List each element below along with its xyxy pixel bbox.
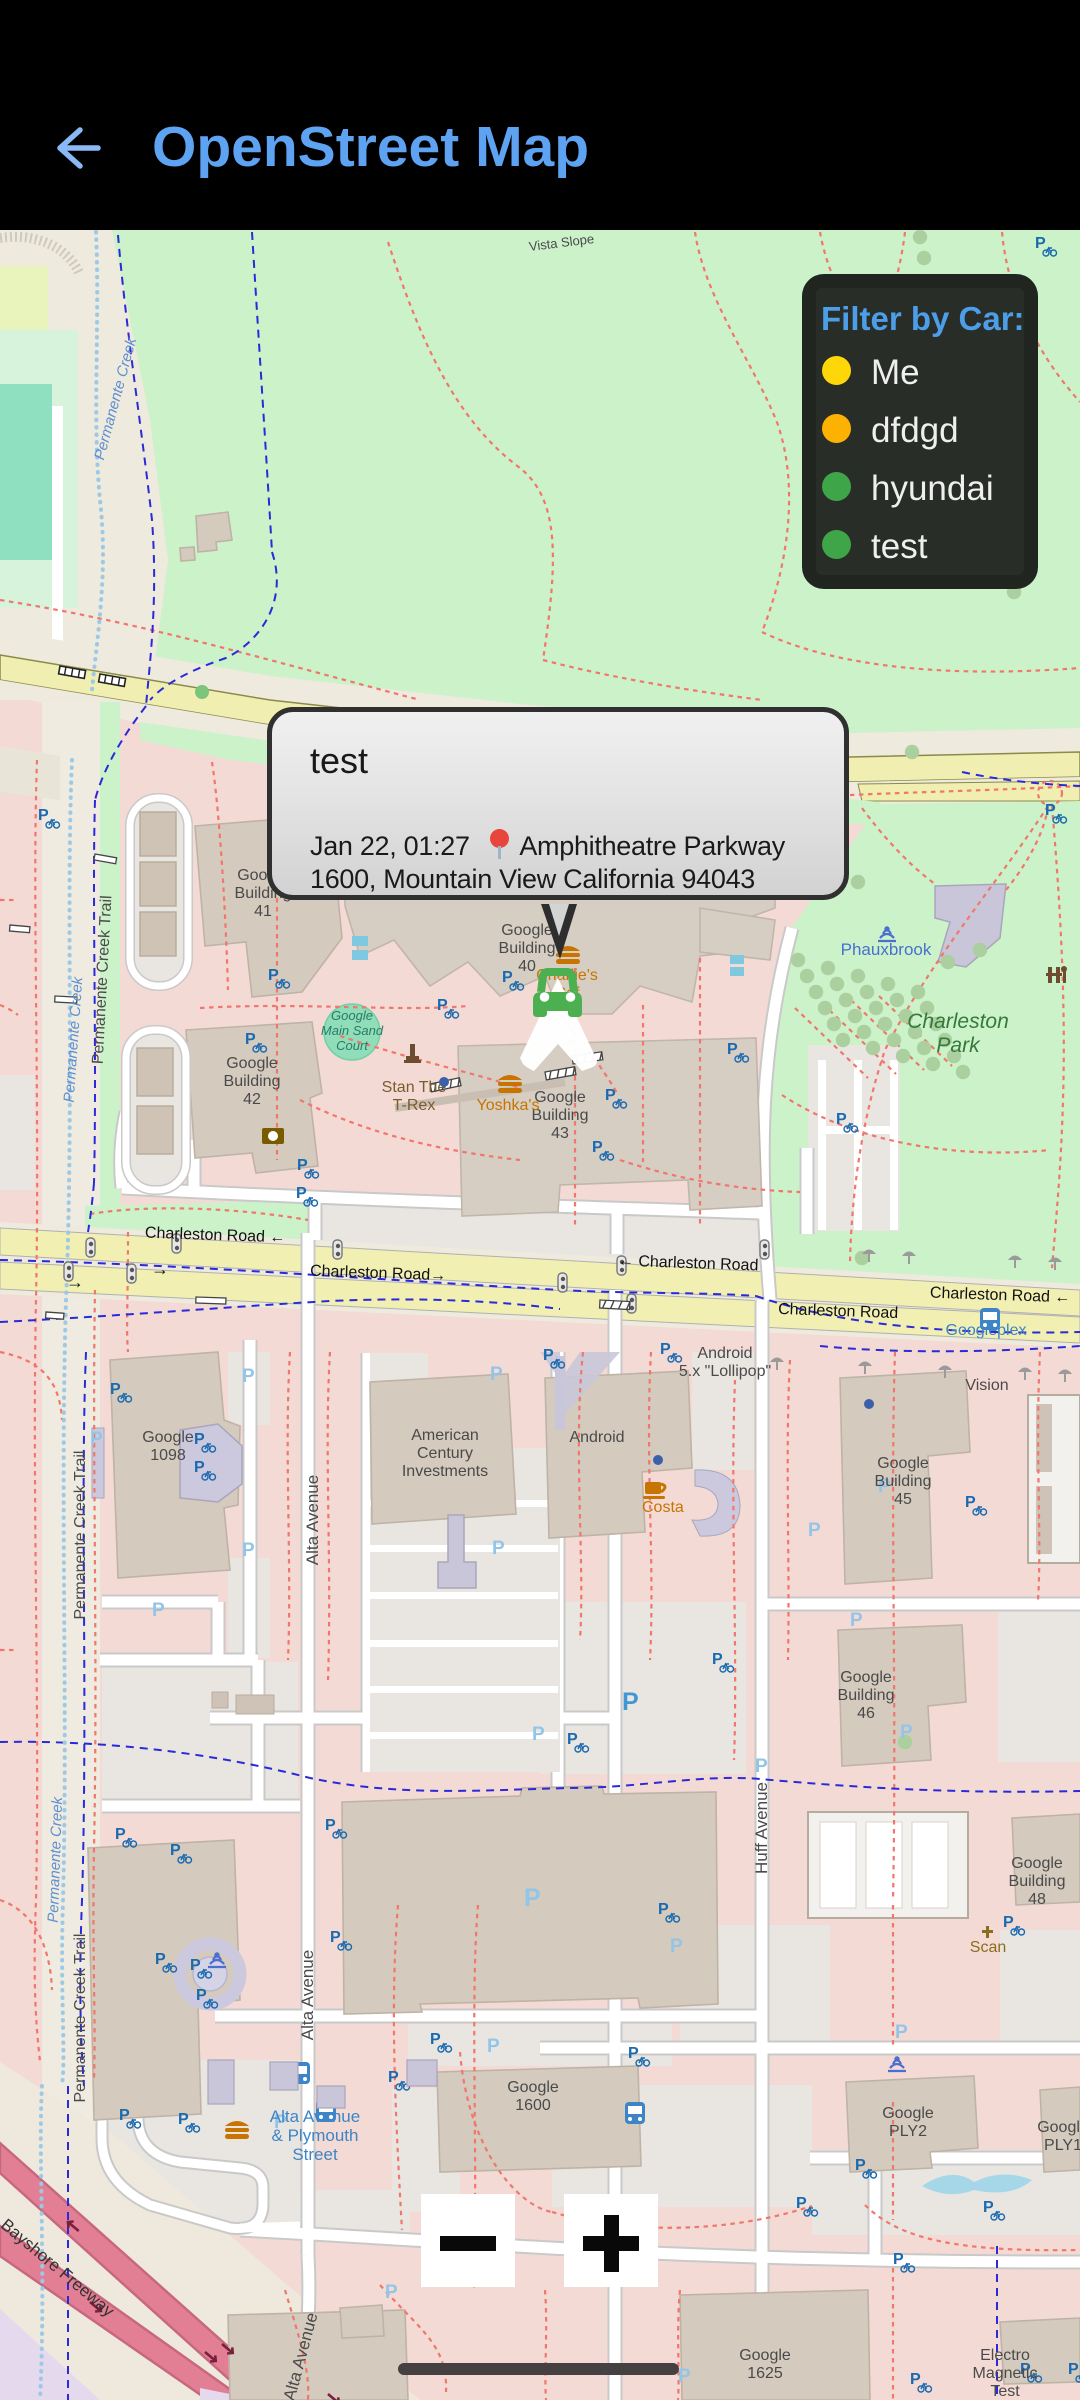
svg-text:P: P	[727, 1041, 738, 1058]
svg-text:P: P	[190, 1957, 201, 1974]
svg-text:P: P	[388, 2069, 399, 2086]
svg-text:P: P	[90, 1429, 103, 1450]
svg-text:P: P	[567, 1731, 578, 1748]
svg-text:P: P	[115, 1826, 126, 1843]
svg-text:→: →	[151, 1259, 169, 1279]
svg-text:GooglePLY1: GooglePLY1	[1037, 2119, 1080, 2154]
svg-text:P: P	[893, 2251, 904, 2268]
svg-text:P: P	[670, 1936, 683, 1957]
svg-text:P: P	[242, 1366, 255, 1387]
svg-text:P: P	[330, 1929, 341, 1946]
svg-text:P: P	[296, 1185, 307, 1202]
svg-text:P: P	[245, 1031, 256, 1048]
svg-text:P: P	[965, 1494, 976, 1511]
svg-text:Android: Android	[569, 1429, 624, 1446]
svg-text:P: P	[808, 1520, 821, 1541]
svg-text:Alta Avenue: Alta Avenue	[303, 1475, 322, 1565]
svg-text:P: P	[487, 2036, 500, 2057]
svg-text:P: P	[712, 1651, 723, 1668]
svg-text:P: P	[622, 1688, 639, 1716]
svg-text:P: P	[502, 969, 513, 986]
svg-text:P: P	[490, 1364, 503, 1385]
svg-text:→: →	[66, 1272, 84, 1292]
svg-text:P: P	[850, 1610, 863, 1631]
svg-text:Vision: Vision	[965, 1377, 1008, 1394]
svg-text:P: P	[532, 1724, 545, 1745]
svg-text:Costa: Costa	[642, 1499, 684, 1516]
svg-text:P: P	[152, 1600, 165, 1621]
svg-text:P: P	[492, 1538, 505, 1559]
svg-text:P: P	[268, 967, 279, 984]
svg-text:P: P	[110, 1381, 121, 1398]
svg-text:P: P	[155, 1951, 166, 1968]
svg-text:P: P	[194, 1459, 205, 1476]
svg-text:P: P	[910, 2371, 921, 2388]
svg-text:Phauxbrook: Phauxbrook	[841, 940, 932, 959]
svg-text:P: P	[1045, 802, 1056, 819]
svg-text:P: P	[660, 1341, 671, 1358]
svg-text:P: P	[628, 2045, 639, 2062]
svg-text:P: P	[895, 2022, 908, 2043]
svg-text:P: P	[796, 2195, 807, 2212]
svg-text:P: P	[38, 807, 49, 824]
svg-text:P: P	[325, 1817, 336, 1834]
svg-text:P: P	[1003, 1914, 1014, 1931]
svg-text:Huff Avenue: Huff Avenue	[752, 1782, 771, 1874]
svg-text:P: P	[592, 1139, 603, 1156]
svg-text:Permanente Creek Trail: Permanente Creek Trail	[72, 1451, 89, 1620]
svg-text:P: P	[900, 1722, 913, 1743]
svg-text:P: P	[178, 2111, 189, 2128]
svg-text:P: P	[430, 2031, 441, 2048]
svg-text:Scan: Scan	[970, 1939, 1006, 1956]
svg-text:Yoshka's: Yoshka's	[477, 1097, 540, 1114]
svg-text:P: P	[543, 1347, 554, 1364]
svg-text:P: P	[194, 1431, 205, 1448]
svg-text:P: P	[678, 2366, 691, 2387]
svg-text:GooglePLY2: GooglePLY2	[882, 2105, 934, 2140]
svg-text:P: P	[855, 2157, 866, 2174]
svg-text:P: P	[524, 1884, 541, 1912]
svg-text:P: P	[658, 1901, 669, 1918]
svg-text:P: P	[119, 2107, 130, 2124]
svg-text:P: P	[983, 2199, 994, 2216]
svg-text:P: P	[170, 1842, 181, 1859]
svg-text:P: P	[755, 1756, 768, 1777]
svg-text:P: P	[297, 1157, 308, 1174]
svg-text:P: P	[1035, 235, 1046, 252]
svg-text:P: P	[437, 997, 448, 1014]
svg-text:P: P	[385, 2282, 398, 2303]
svg-text:Permanente Creek Trail: Permanente Creek Trail	[72, 1934, 89, 2103]
svg-text:P: P	[242, 1540, 255, 1561]
svg-text:P: P	[605, 1087, 616, 1104]
svg-text:P: P	[836, 1111, 847, 1128]
svg-text:P: P	[1068, 2361, 1079, 2378]
svg-text:Alta Avenue: Alta Avenue	[298, 1950, 317, 2040]
svg-text:P: P	[196, 1987, 207, 2004]
